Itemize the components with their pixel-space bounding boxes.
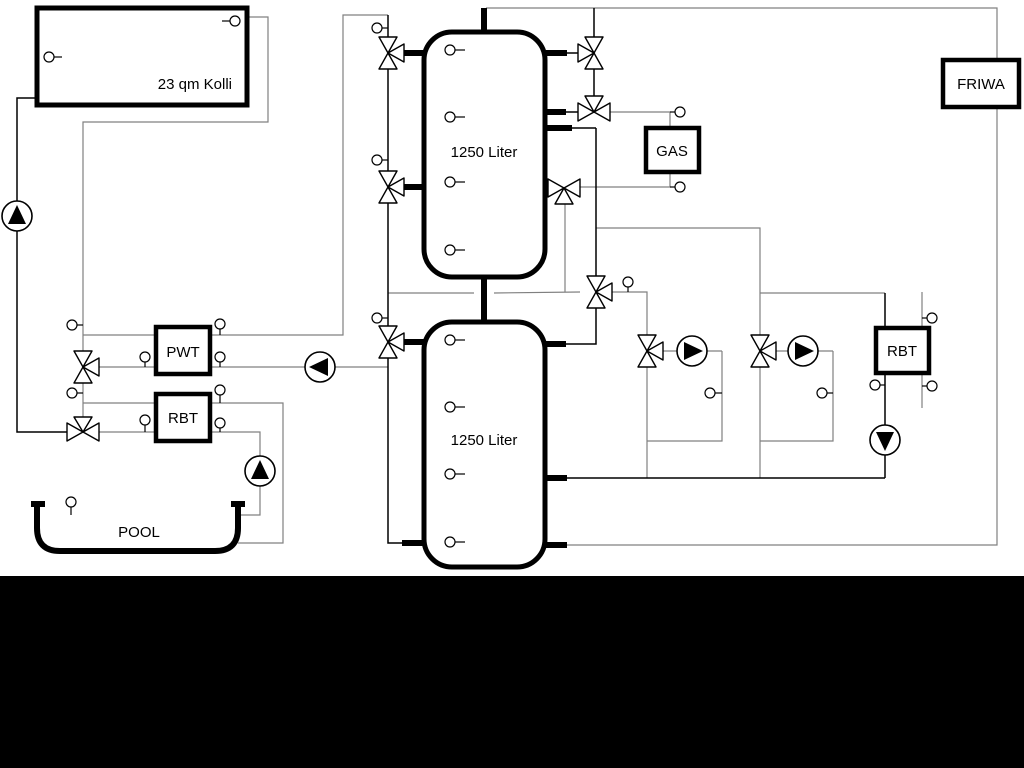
sensor-icon [215,418,225,432]
pool-basin: POOL [31,503,245,551]
three-way-valve-pool-return [67,417,99,441]
circuit2-pump-icon [788,336,818,366]
pwt-label: PWT [166,344,199,361]
sensor-icon [623,277,633,292]
schematic-canvas: 23 qm Kolli 1250 Liter 1250 Liter PWT RB… [0,0,1024,768]
sensor-icon [817,388,833,398]
sensor-icon [372,155,388,165]
pipe-top-header [486,8,997,545]
collector-label: 23 qm Kolli [158,76,232,93]
hydraulic-schematic: 23 qm Kolli 1250 Liter 1250 Liter PWT RB… [0,0,1024,768]
buffer-tank-bottom-label: 1250 Liter [451,432,518,449]
bottom-black-bar [0,576,1024,768]
pipe-mix-to-circuit1 [612,292,647,335]
three-way-valve-circuit2 [751,335,776,367]
pipe-solar-return [17,98,67,432]
pipe-mid-right [494,292,580,293]
three-way-valve-gas-return [548,179,580,204]
circuit1-pump-icon [677,336,707,366]
solar-pump-icon [2,201,32,231]
rbt-right-pump-icon [870,425,900,455]
pipe-heating-main [596,228,760,335]
sensor-icon [215,319,225,335]
sensor-icon [922,313,937,323]
rbt-right-label: RBT [887,343,917,360]
three-way-valve-circuit1 [638,335,663,367]
buffer-tank-top-label: 1250 Liter [451,144,518,161]
pwt-charge-pump-icon [305,352,335,382]
pool-label: POOL [118,524,160,541]
pipe-gas-supply [610,112,670,128]
sensor-icon [705,388,722,398]
sensor-icon [922,381,937,391]
pipe-vcol-4 [388,358,402,543]
sensor-icon [67,388,83,398]
three-way-valve-heating-mix [587,276,612,308]
sensor-icon [870,380,885,390]
sensor-icon [670,107,685,117]
sensor-icon [372,313,388,323]
pool-pump-icon [245,456,275,486]
sensor-icon [372,23,388,33]
three-way-valve-gas-supply [578,96,610,121]
three-way-valve-tank-left-3 [379,326,404,358]
three-way-valve-tank-right-top [578,37,603,69]
gas-boiler-label: GAS [656,143,688,160]
sensor-icon [670,182,685,192]
sensor-icon [215,385,225,403]
sensor-icon [215,352,225,367]
sensor-icon [67,320,83,330]
rbt-left-label: RBT [168,410,198,427]
friwa-label: FRIWA [957,76,1005,93]
sensor-icon [66,497,76,515]
three-way-valve-tank-left-2 [379,171,404,203]
sensor-icon [140,352,150,367]
pipe-rcol-4 [566,308,596,344]
sensor-icon [140,415,150,432]
three-way-valve-solar-pwt [74,351,99,383]
three-way-valve-tank-left-1 [379,37,404,69]
